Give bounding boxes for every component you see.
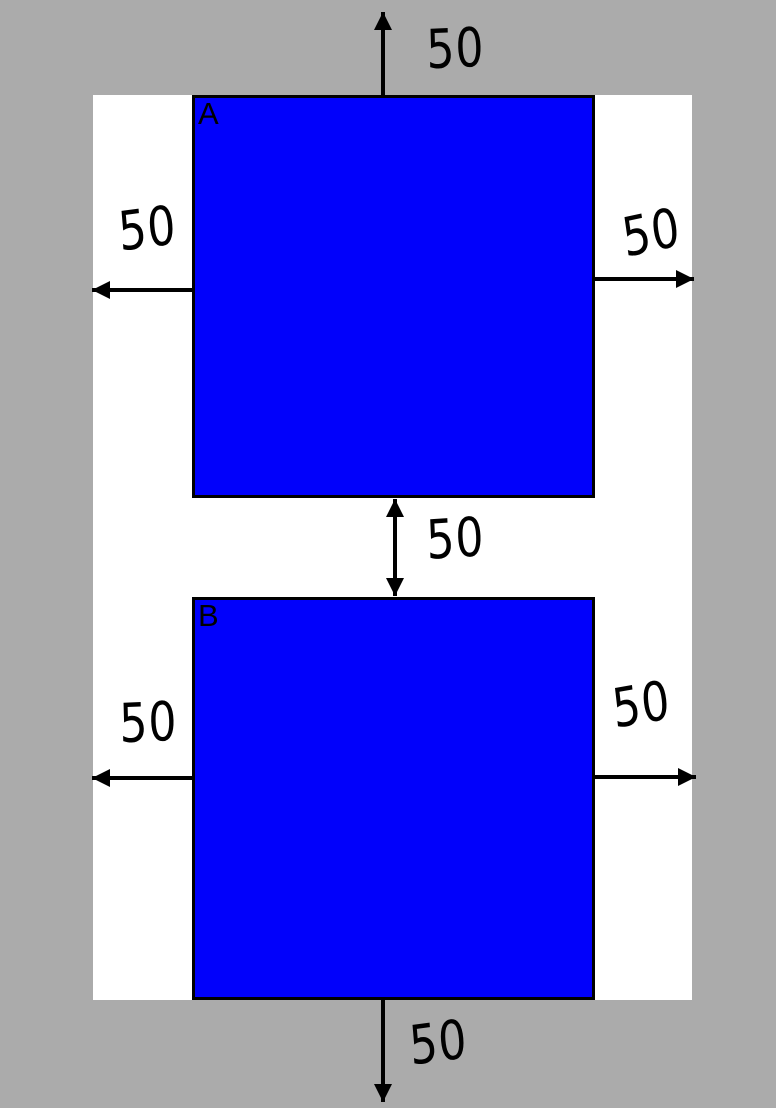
square-a: A xyxy=(192,95,595,498)
label-bottom-arrow-value: 50 xyxy=(407,1012,469,1073)
square-b-label: B xyxy=(198,600,219,633)
diagram-canvas: A B 50 50 50 50 50 50 50 xyxy=(0,0,776,1108)
label-a-right-arrow-value: 50 xyxy=(619,200,684,265)
square-b: B xyxy=(192,597,595,1000)
label-gap-arrow-value: 50 xyxy=(425,510,485,568)
label-a-left-arrow-value: 50 xyxy=(116,198,178,259)
label-b-left-arrow-value: 50 xyxy=(119,695,178,751)
label-b-right-arrow-value: 50 xyxy=(610,673,674,736)
label-top-arrow-value: 50 xyxy=(426,21,485,77)
square-a-label: A xyxy=(198,98,219,131)
